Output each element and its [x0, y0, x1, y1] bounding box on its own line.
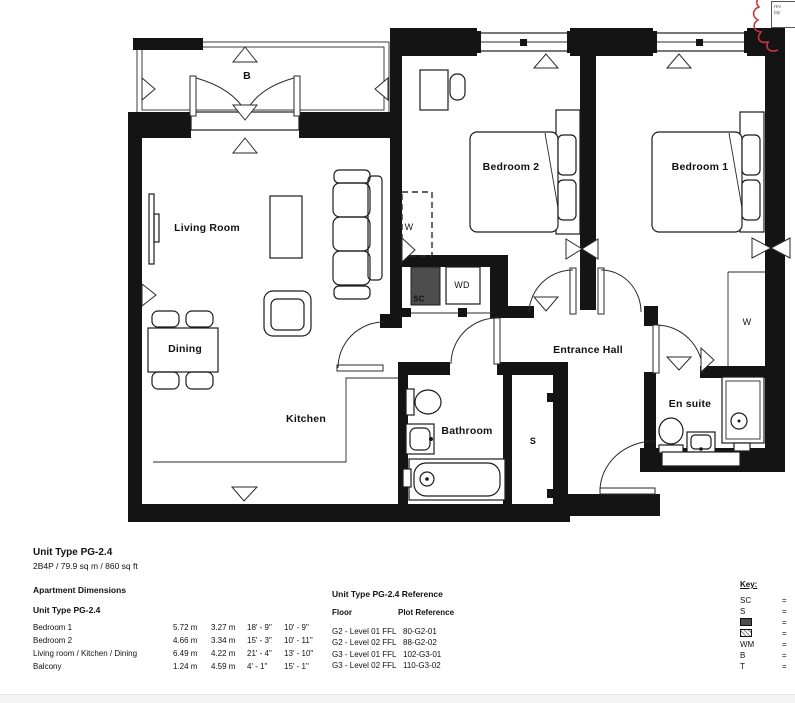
ref-floor: G2 - Level 01 FFL	[332, 627, 396, 636]
tv-icon	[149, 194, 159, 264]
key-item: SC =	[740, 596, 795, 607]
table-row: G3 - Level 01 FFL 102-G3-01	[332, 650, 512, 661]
key-symbol: T	[740, 662, 745, 671]
table-row: Balcony 1.24 m 4.59 m 4' - 1" 15' - 1"	[33, 662, 333, 675]
dim-d-ft: 10' - 9"	[284, 623, 309, 632]
revision-note: rev lay	[771, 1, 795, 28]
room-label-bedroom1: Bedroom 1	[672, 161, 729, 173]
label-store-cupboard: SC	[413, 295, 425, 304]
key-heading: Key:	[740, 580, 757, 589]
room-label-en-suite: En suite	[669, 398, 711, 410]
table-row: Bedroom 1 5.72 m 3.27 m 18' - 9" 10' - 9…	[33, 623, 333, 636]
dim-w-m: 5.72 m	[173, 623, 197, 632]
dim-w-ft: 4' - 1"	[247, 662, 267, 671]
key-item: T =	[740, 662, 795, 673]
door-bedroom2	[529, 268, 576, 314]
key-item: WM =	[740, 640, 795, 651]
key-item: S =	[740, 607, 795, 618]
unit-summary: 2B4P / 79.9 sq m / 860 sq ft	[33, 561, 138, 571]
basin-icon	[406, 424, 434, 454]
room-label-entrance-hall: Entrance Hall	[553, 344, 623, 356]
door-kitchen-hall	[337, 322, 384, 371]
table-row: G3 - Level 02 FFL 110-G3-02	[332, 661, 512, 672]
armchair-icon	[264, 291, 311, 336]
floorplan-page: B Living Room Dining Kitchen Bedroom 2 B…	[0, 0, 795, 703]
window-bedroom1	[650, 31, 751, 53]
room-label-store: S	[530, 436, 536, 446]
wardrobe-hatch-icon	[740, 629, 752, 637]
key-equals: =	[782, 640, 787, 649]
dim-d-m: 4.22 m	[211, 649, 235, 658]
bottom-edge-strip	[0, 694, 795, 703]
dim-w-ft: 21' - 4"	[247, 649, 272, 658]
ref-floor: G3 - Level 02 FFL	[332, 661, 396, 670]
key-symbol: SC	[740, 596, 751, 605]
dim-d-m: 4.59 m	[211, 662, 235, 671]
room-label-kitchen: Kitchen	[286, 413, 326, 425]
key-item: =	[740, 618, 795, 629]
balcony-outline	[137, 42, 389, 115]
sofa-icon	[333, 170, 382, 299]
dim-w-m: 4.66 m	[173, 636, 197, 645]
col-plot-reference: Plot Reference	[398, 608, 454, 617]
key-item: B =	[740, 651, 795, 662]
dim-w-m: 1.24 m	[173, 662, 197, 671]
coffee-table-icon	[270, 196, 302, 258]
kitchen-counter	[153, 378, 398, 462]
table-row: Bedroom 2 4.66 m 3.34 m 15' - 3" 10' - 1…	[33, 636, 333, 649]
ref-plot: 80-G2-01	[403, 627, 437, 636]
revision-note-line2: lay	[774, 10, 795, 16]
dim-d-m: 3.34 m	[211, 636, 235, 645]
room-label-bathroom: Bathroom	[441, 425, 492, 437]
dim-w-ft: 18' - 9"	[247, 623, 272, 632]
toilet-icon	[406, 389, 441, 415]
room-label-balcony: B	[243, 70, 251, 82]
key-equals: =	[782, 618, 787, 627]
dimensions-table: Bedroom 1 5.72 m 3.27 m 18' - 9" 10' - 9…	[33, 623, 333, 675]
dimensions-subheading: Unit Type PG-2.4	[33, 605, 100, 615]
label-wardrobe-bedroom2: W	[405, 222, 414, 232]
door-bathroom	[451, 318, 500, 364]
balcony-french-doors	[190, 76, 300, 130]
ref-plot: 88-G2-02	[403, 638, 437, 647]
table-row: G2 - Level 02 FFL 88-G2-02	[332, 638, 512, 649]
dim-d-ft: 10' - 11"	[284, 636, 313, 645]
key-equals: =	[782, 607, 787, 616]
dim-name: Bedroom 1	[33, 623, 72, 632]
dim-name: Balcony	[33, 662, 61, 671]
dim-w-m: 6.49 m	[173, 649, 197, 658]
dim-name: Bedroom 2	[33, 636, 72, 645]
table-row: Living room / Kitchen / Dining 6.49 m 4.…	[33, 649, 333, 662]
bath-icon	[403, 459, 505, 500]
ensuite-basin-icon	[687, 432, 715, 452]
glazing-bowties	[566, 238, 790, 259]
dim-d-ft: 15' - 1"	[284, 662, 309, 671]
reference-table: G2 - Level 01 FFL 80-G2-01 G2 - Level 02…	[332, 627, 512, 672]
room-label-living-room: Living Room	[174, 222, 240, 234]
dim-w-ft: 15' - 3"	[247, 636, 272, 645]
ref-plot: 102-G3-01	[403, 650, 441, 659]
key-legend: SC = S = = = WM = B = T =	[740, 596, 795, 673]
key-equals: =	[782, 651, 787, 660]
key-symbol: S	[740, 607, 745, 616]
ensuite-toilet-icon	[659, 418, 683, 453]
floor-plan-drawing	[0, 0, 795, 545]
key-equals: =	[782, 629, 787, 638]
unit-type-title: Unit Type PG-2.4	[33, 547, 112, 558]
dimensions-heading: Apartment Dimensions	[33, 585, 126, 595]
col-floor: Floor	[332, 608, 352, 617]
label-washer-dryer: WD	[454, 280, 469, 290]
reference-header-row: Floor Plot Reference	[332, 608, 512, 619]
door-bedroom1	[598, 268, 641, 314]
key-symbol: WM	[740, 640, 754, 649]
room-label-bedroom2: Bedroom 2	[483, 161, 540, 173]
dim-d-ft: 13' - 10"	[284, 649, 313, 658]
window-bedroom2	[474, 31, 574, 53]
dim-d-m: 3.27 m	[211, 623, 235, 632]
table-row: G2 - Level 01 FFL 80-G2-01	[332, 627, 512, 638]
ref-floor: G2 - Level 02 FFL	[332, 638, 396, 647]
key-equals: =	[782, 596, 787, 605]
ref-floor: G3 - Level 01 FFL	[332, 650, 396, 659]
key-equals: =	[782, 662, 787, 671]
room-label-dining: Dining	[168, 343, 202, 355]
reference-heading: Unit Type PG-2.4 Reference	[332, 589, 443, 599]
key-item: =	[740, 629, 795, 640]
ref-plot: 110-G3-02	[403, 661, 441, 670]
key-symbol: B	[740, 651, 745, 660]
dim-name: Living room / Kitchen / Dining	[33, 649, 137, 658]
wardrobe-solid-icon	[740, 618, 752, 626]
desk-icon	[420, 70, 465, 110]
label-wardrobe-bedroom1: W	[743, 317, 752, 327]
